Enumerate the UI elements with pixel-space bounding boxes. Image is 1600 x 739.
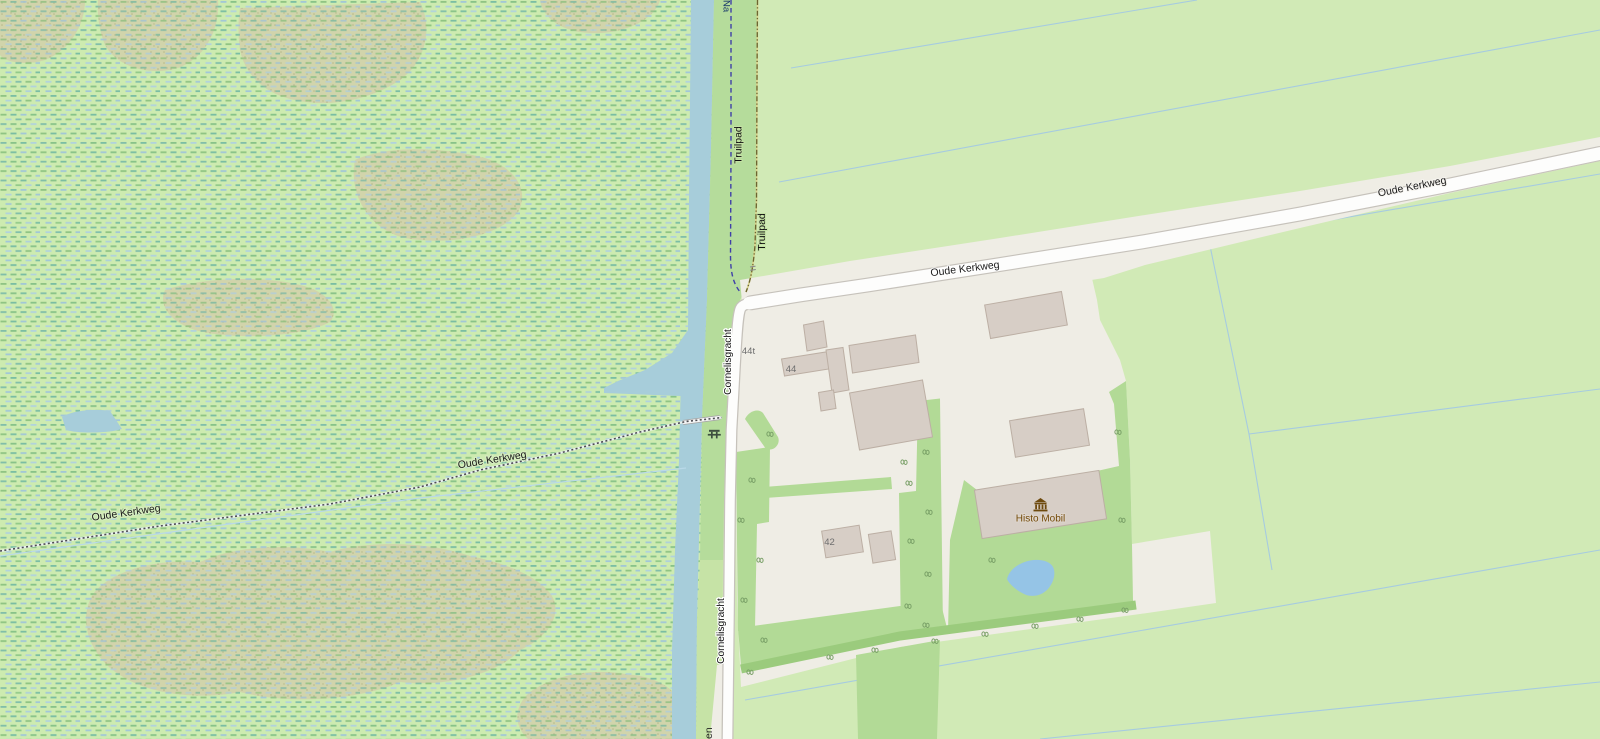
svg-text:Truilpad: Truilpad xyxy=(733,126,745,164)
svg-text:44t: 44t xyxy=(742,346,756,357)
svg-text:Cornelisgracht: Cornelisgracht xyxy=(716,598,727,664)
svg-text:Na: Na xyxy=(721,0,732,13)
svg-text:en: en xyxy=(703,727,715,739)
svg-text:Histo Mobil: Histo Mobil xyxy=(1016,514,1065,525)
svg-text:42: 42 xyxy=(824,537,835,548)
svg-text:Truilpad: Truilpad xyxy=(756,213,768,251)
svg-text:Cornelisgracht: Cornelisgracht xyxy=(723,329,734,395)
svg-text:44: 44 xyxy=(786,364,797,375)
